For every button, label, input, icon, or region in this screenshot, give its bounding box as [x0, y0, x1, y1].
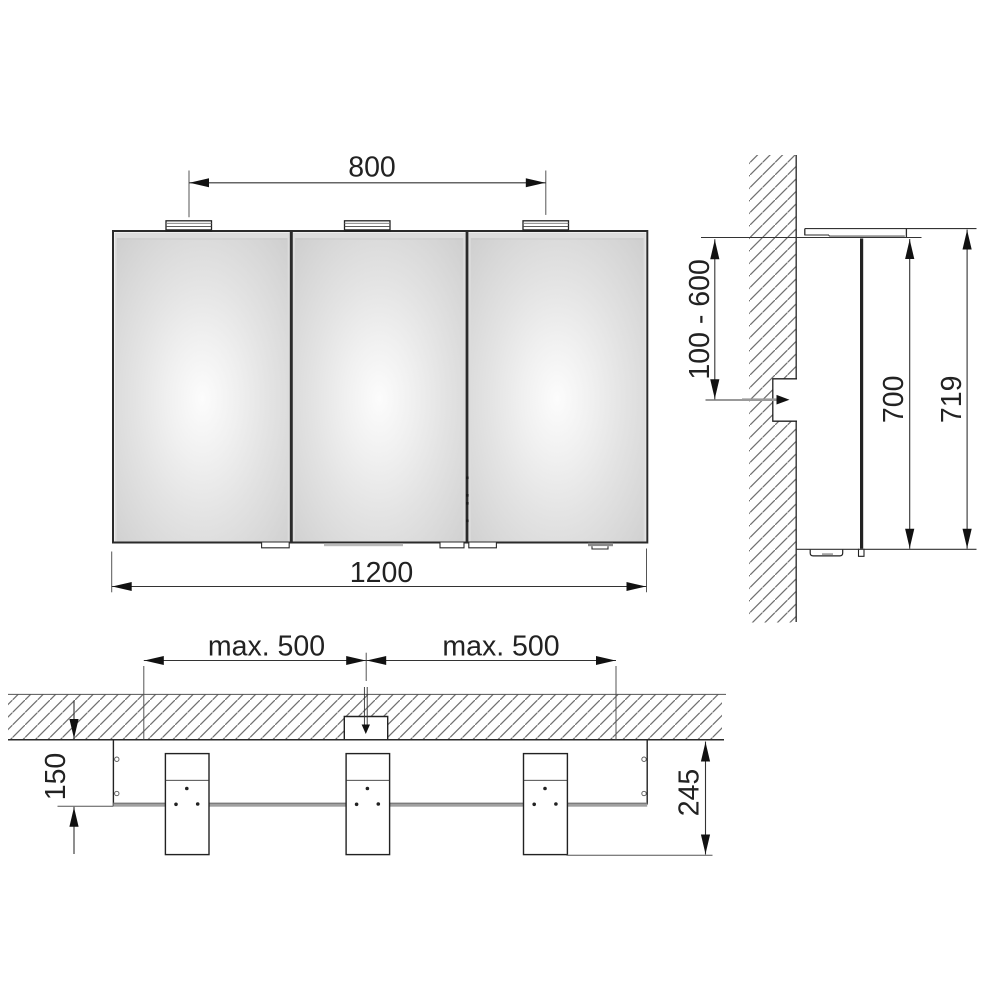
svg-text:700: 700: [878, 376, 910, 424]
svg-text:800: 800: [348, 152, 396, 184]
svg-text:150: 150: [40, 753, 72, 801]
svg-text:100 - 600: 100 - 600: [684, 259, 716, 379]
svg-text:max. 500: max. 500: [208, 631, 325, 663]
svg-text:719: 719: [936, 376, 968, 424]
svg-text:1200: 1200: [350, 557, 413, 589]
svg-text:245: 245: [674, 769, 706, 817]
svg-text:max. 500: max. 500: [442, 631, 559, 663]
